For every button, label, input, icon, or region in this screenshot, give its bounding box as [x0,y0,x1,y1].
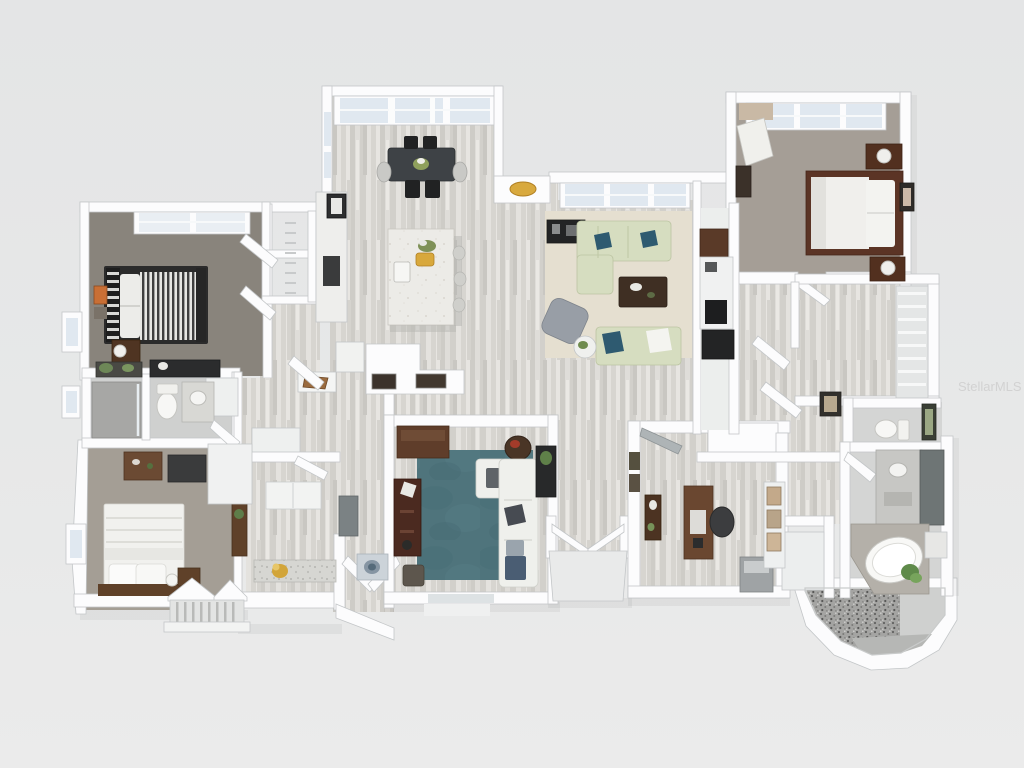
svg-text:StellarMLS: StellarMLS [958,379,1022,394]
